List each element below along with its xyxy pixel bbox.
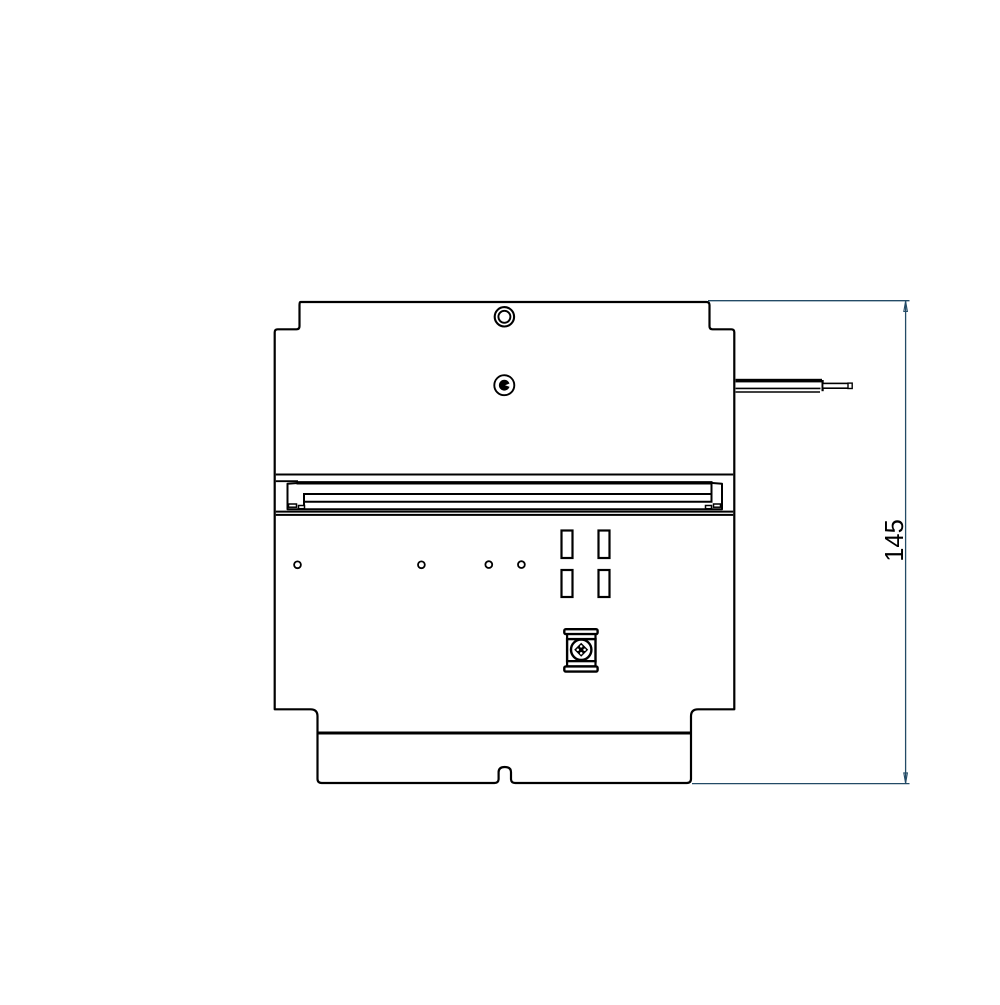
svg-text:145: 145 (881, 519, 909, 562)
